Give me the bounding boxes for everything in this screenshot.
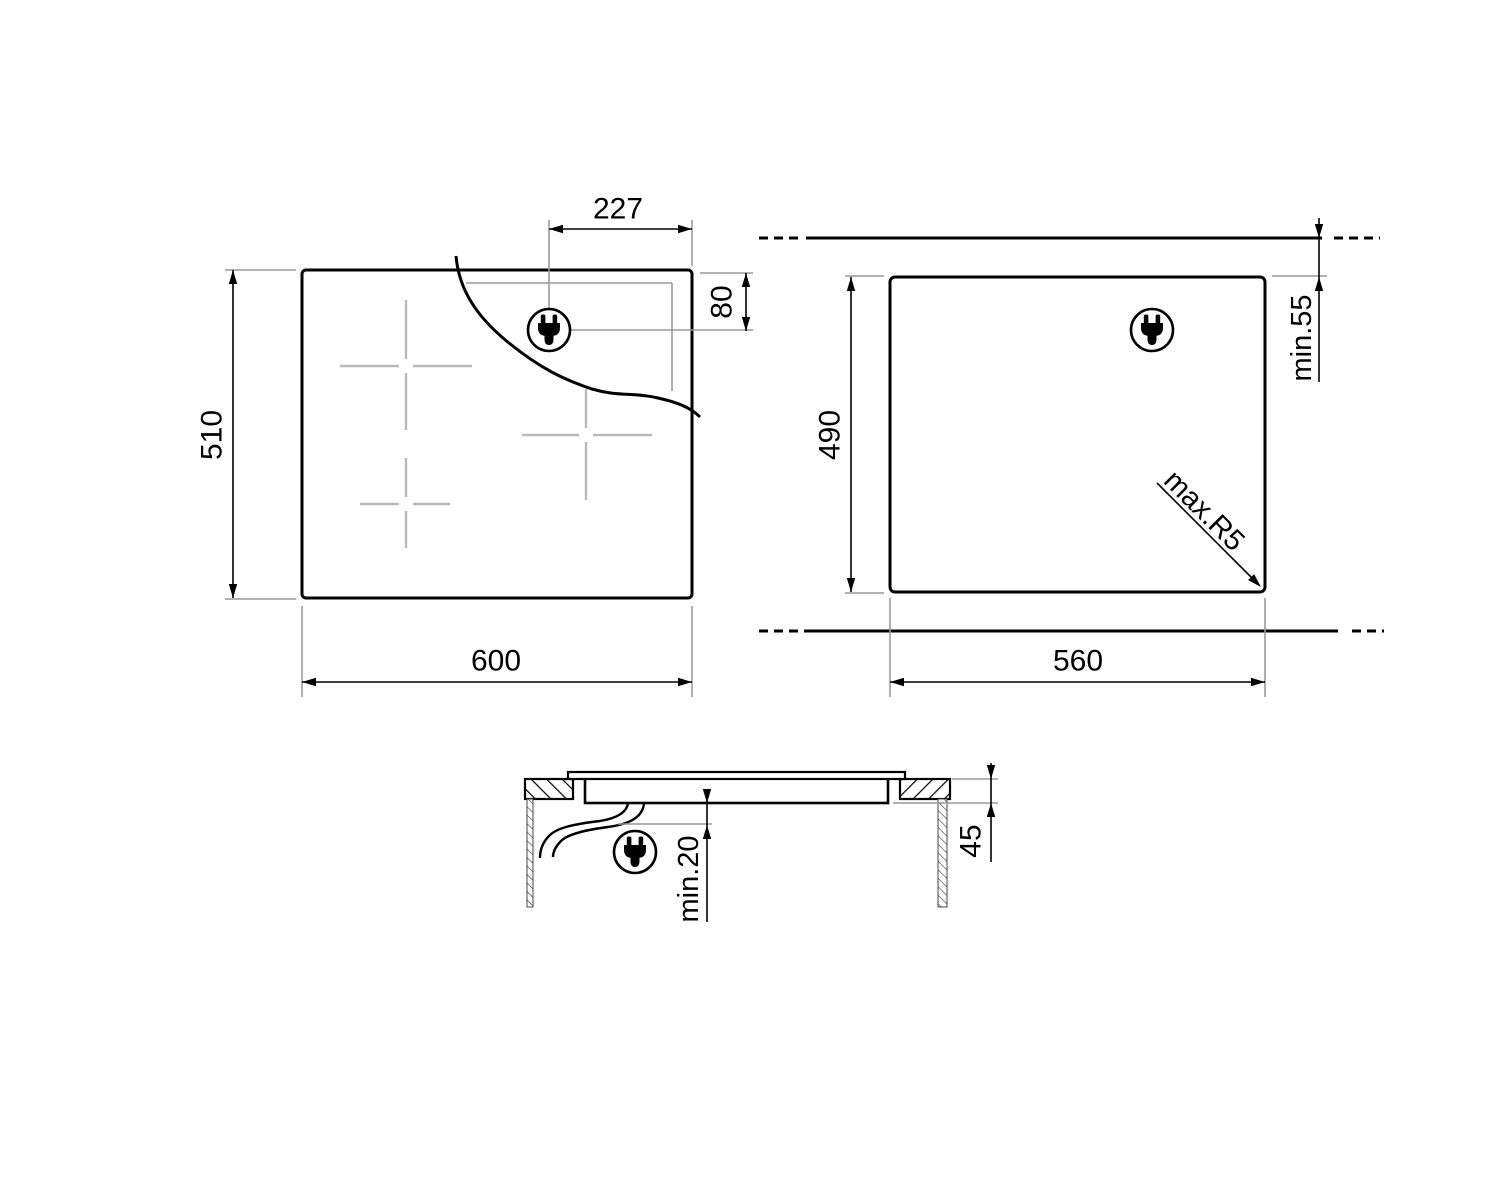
dim-label-80: 80 [706,285,739,318]
cabinet-side-right [938,799,947,907]
dim-label-510: 510 [196,410,229,460]
dim-label-490: 490 [814,410,847,460]
hob-body-section [585,778,888,803]
dim-wall-clearance: min.55 [1272,218,1327,382]
dim-plug-offset-y: 80 [700,273,753,331]
cutout-view: 490 560 min.55 max.R5 [759,218,1384,697]
dim-label-45: 45 [955,824,988,857]
dim-label-560: 560 [1053,645,1103,678]
power-plug-icon [1131,309,1173,351]
dim-label-227: 227 [593,193,643,226]
dim-label-min55: min.55 [1286,294,1318,381]
section-view: min.20 45 [525,763,998,923]
power-plug-icon [528,309,570,351]
dim-cutout-width: 560 [890,598,1265,697]
dim-plug-offset-x: 227 [549,193,692,267]
installation-diagram: 227 80 510 600 [0,0,1500,1200]
cutout-outline [890,277,1265,592]
worktop-section-right [900,779,950,799]
dim-label-600: 600 [471,645,521,678]
hob-glass-section [568,772,905,779]
dim-cutout-height: 490 [814,276,885,593]
power-plug-icon [614,831,656,873]
dim-label-min20: min.20 [673,835,705,922]
cabinet-side-left [527,799,533,907]
page: 227 80 510 600 [0,0,1500,1200]
dim-hob-width: 600 [302,606,692,697]
worktop-section-left [525,779,573,799]
dim-hob-height: 510 [196,270,297,599]
top-view: 227 80 510 600 [196,193,754,698]
